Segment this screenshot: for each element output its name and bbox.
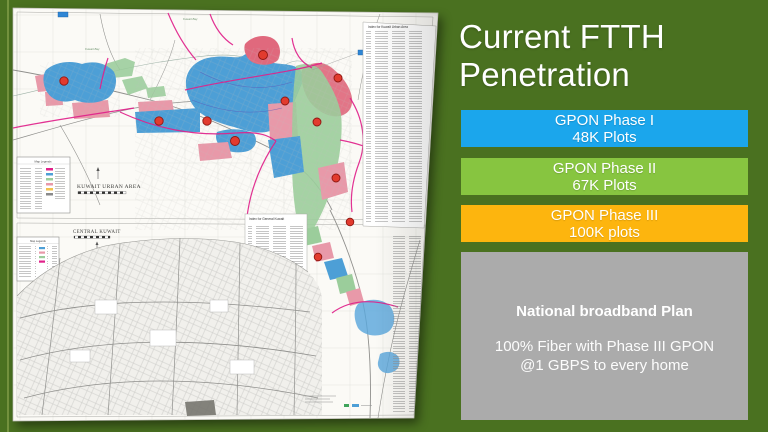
national-broadband-plan-box: National broadband Plan 100% Fiber with … [461,252,748,420]
plan-heading: National broadband Plan [461,303,748,321]
kuwait-network-map: Index for Kuwait Urban Area Index for Ge… [0,0,455,432]
phase-2-plots: 67K Plots [572,177,636,194]
gpon-phase-2-bar: GPON Phase II 67K Plots [461,158,748,195]
phase-3-plots: 100K plots [569,224,640,241]
phase-3-label: GPON Phase III [551,207,659,224]
gpon-phase-3-bar: GPON Phase III 100K plots [461,205,748,242]
phase-1-label: GPON Phase I [555,112,654,129]
phase-1-plots: 48K Plots [572,129,636,146]
plan-line-2: @1 GBPS to every home [461,357,748,376]
title-line-2: Penetration [459,56,630,93]
plan-line-1: 100% Fiber with Phase III GPON [461,338,748,357]
content-panel: Current FTTH Penetration GPON Phase I 48… [458,0,758,432]
page-title: Current FTTH Penetration [459,18,749,94]
slide-background: Index for Kuwait Urban Area Index for Ge… [0,0,768,432]
gpon-phase-1-bar: GPON Phase I 48K Plots [461,110,748,147]
map-image: Index for Kuwait Urban Area Index for Ge… [0,0,455,432]
phase-2-label: GPON Phase II [553,160,656,177]
title-line-1: Current FTTH [459,18,665,55]
